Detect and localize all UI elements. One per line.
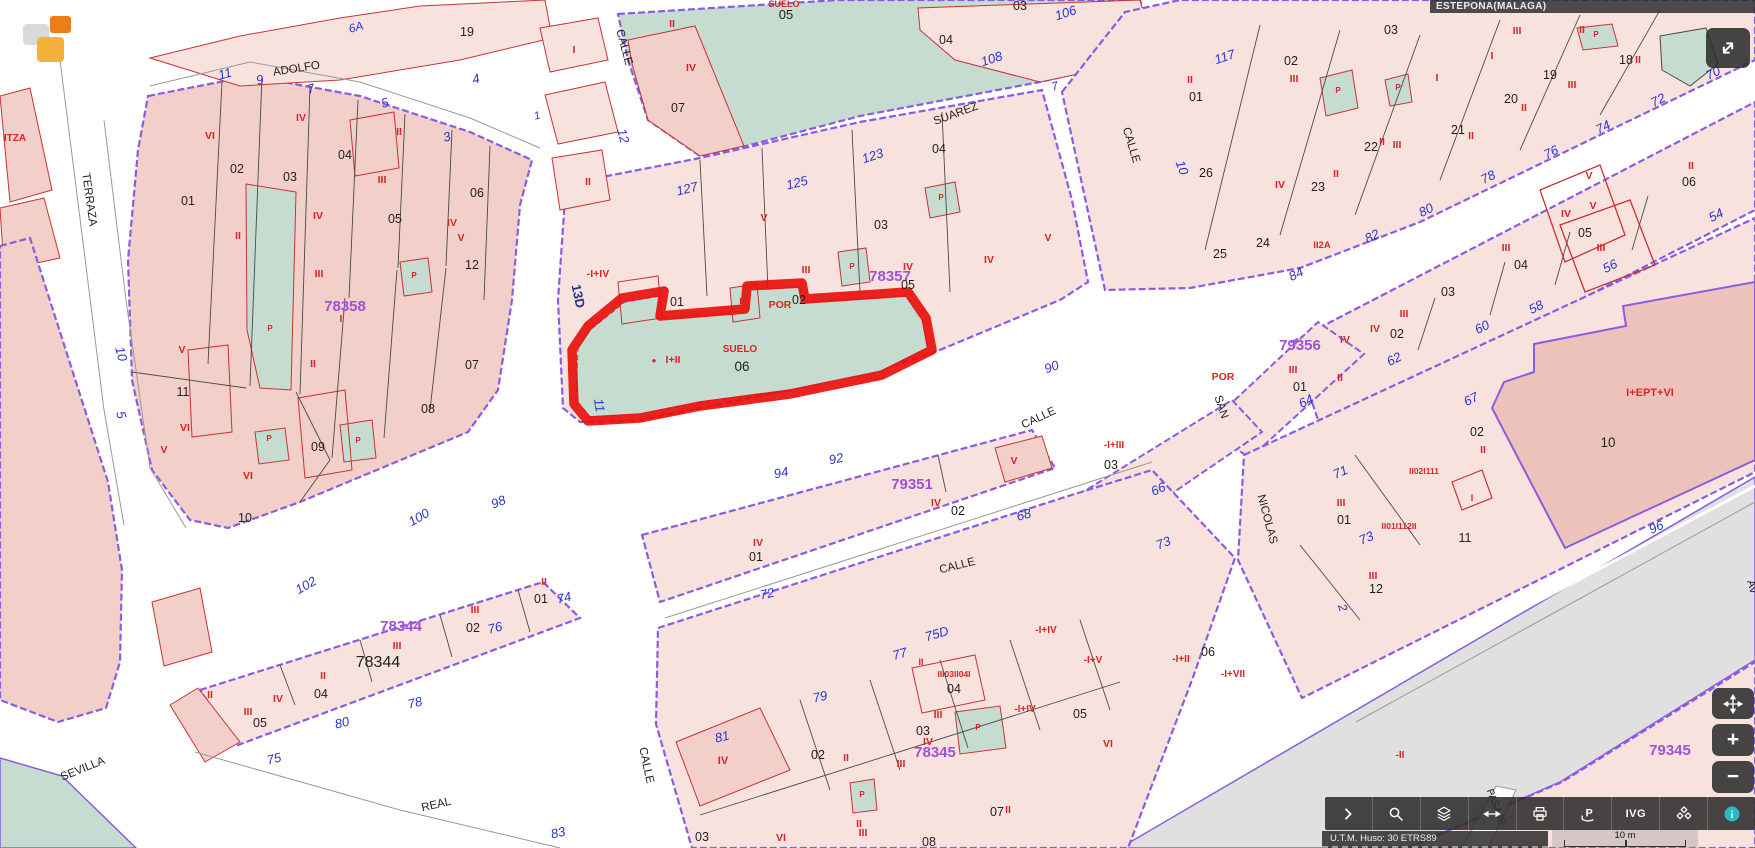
map-label: VI [776, 832, 786, 844]
map-label: 02 [466, 621, 480, 635]
map-label: 05 [901, 278, 915, 292]
map-label: II [396, 126, 402, 138]
map-label: 06 [470, 186, 484, 200]
map-label: SUELO [768, 0, 799, 9]
map-label: 11 [1459, 531, 1472, 545]
map-label: V [1585, 170, 1592, 182]
map-label: REAL [420, 796, 453, 815]
map-label: 01 [1189, 90, 1203, 104]
map-label: II [310, 358, 316, 370]
map-label: V [1010, 455, 1017, 467]
map-label: III [1369, 570, 1378, 582]
map-label: 12 [465, 258, 479, 272]
map-label: III [1290, 73, 1299, 85]
map-viewport: ADOLFOTERRAZACALLESUAREZCALLECALLECALLEC… [0, 0, 1755, 848]
chevron-right-icon [1340, 806, 1356, 822]
parcel-divider-line [195, 752, 560, 848]
map-label: 7 [1049, 78, 1061, 94]
map-label: 01 [670, 295, 684, 309]
map-label: P [1335, 86, 1341, 95]
map-label: 02 [811, 748, 825, 762]
map-label: II [1521, 102, 1527, 114]
map-label: 78344 [356, 654, 401, 671]
measure-button[interactable] [1468, 797, 1516, 830]
map-label: 26 [1199, 166, 1213, 180]
map-label: 03 [1104, 458, 1118, 472]
map-label: III [471, 604, 480, 616]
search-icon [1387, 805, 1405, 823]
map-label: III [1502, 242, 1511, 254]
map-label: 04 [1514, 258, 1528, 272]
map-label: 03 [695, 830, 709, 844]
map-label: 79351 [891, 476, 933, 493]
map-label: 12 [1369, 582, 1383, 596]
map-label: III [1393, 139, 1402, 151]
map-label: SEVILLA [59, 755, 107, 784]
zoom-out-button[interactable]: − [1712, 761, 1754, 793]
map-label: 02 [1284, 54, 1298, 68]
map-label: POR [769, 299, 792, 311]
map-label: II [669, 18, 675, 30]
map-label: 04 [314, 687, 328, 701]
map-label: II [320, 670, 326, 682]
calle-west-parcel-c[interactable] [552, 150, 610, 210]
map-label: -I+IV [1035, 625, 1057, 636]
map-label: 83 [549, 824, 567, 842]
map-label: V [178, 344, 185, 356]
map-label: 03 [283, 170, 297, 184]
left-right-arrow-icon [1483, 805, 1501, 823]
map-label: ● [652, 356, 657, 365]
green-parcel-78358-b[interactable] [255, 428, 289, 464]
cadastral-map[interactable]: ADOLFOTERRAZACALLESUAREZCALLECALLECALLEC… [0, 0, 1755, 848]
map-label: IV [1275, 179, 1285, 191]
map-label: II02I111 [1409, 466, 1439, 476]
map-label: 04 [338, 148, 352, 162]
map-label: III [1597, 242, 1606, 254]
p-pin-icon: P [1578, 804, 1598, 824]
move-arrows-icon [1723, 694, 1743, 714]
map-label: II [235, 230, 241, 242]
map-label: I [1491, 50, 1494, 62]
sevilla-corner-block[interactable] [0, 238, 122, 722]
map-label: IV [903, 261, 913, 273]
point-info-button[interactable]: P [1563, 797, 1611, 830]
layers-button[interactable] [1420, 797, 1468, 830]
map-label: 07 [671, 101, 685, 115]
map-label: 10 [1600, 435, 1615, 450]
map-label: 08 [421, 402, 435, 416]
map-label: VI [205, 130, 215, 142]
map-label: II [1187, 74, 1193, 86]
scale-bracket [1564, 840, 1686, 847]
map-label: 03 [874, 218, 888, 232]
map-label: II [207, 689, 213, 701]
map-label: 100 [406, 505, 433, 529]
map-label: I [573, 44, 576, 56]
bottom-toolbar: P IVG i [1325, 797, 1755, 830]
map-label: -I+VII [1221, 669, 1245, 680]
map-label: 18 [1619, 53, 1633, 67]
map-label: IV [296, 112, 306, 124]
map-label: 12 [614, 127, 632, 146]
map-label: II2A [1313, 240, 1331, 251]
map-label: IV [753, 537, 763, 549]
map-label: V [1044, 232, 1051, 244]
map-label: P [739, 297, 745, 306]
map-label: 25 [1213, 247, 1227, 261]
map-label: II [541, 576, 547, 588]
map-label: TERRAZA [79, 172, 98, 227]
map-label: V [1589, 200, 1596, 212]
map-label: IV [273, 693, 283, 705]
map-label: II [1468, 130, 1474, 142]
map-label: 19 [1543, 68, 1557, 82]
svg-text:P: P [1585, 807, 1592, 819]
map-label: III [897, 758, 906, 770]
map-label: III [1289, 364, 1298, 376]
utm-label: U.T.M. Huso: 30 ETRS89 [1322, 831, 1548, 848]
map-label: SUELO [723, 344, 758, 355]
map-label: II [1379, 136, 1385, 148]
map-label: 06 [734, 359, 749, 374]
map-label: II [585, 176, 591, 188]
map-label: III [1568, 79, 1577, 91]
map-label: 78345 [914, 744, 956, 761]
map-label: III [1513, 25, 1522, 37]
map-label: 75 [265, 749, 283, 767]
map-label: III [934, 709, 943, 721]
map-label: 4 [470, 70, 481, 86]
map-label: 79356 [1279, 337, 1321, 354]
search-button[interactable] [1372, 797, 1420, 830]
expand-toolbar-button[interactable] [1325, 797, 1372, 830]
map-label: V [160, 444, 167, 456]
map-label: I+EPT+VI [1626, 387, 1674, 399]
map-label: 1 [533, 110, 542, 123]
map-label: 05 [253, 716, 267, 730]
3d-cubes-button[interactable] [1659, 797, 1707, 830]
map-label: -I+II [1172, 654, 1190, 665]
map-label: V [760, 212, 767, 224]
map-label: -I+V [1084, 655, 1103, 666]
map-label: 02 [230, 162, 244, 176]
map-label: III [802, 264, 811, 276]
map-label: 05 [1578, 226, 1592, 240]
map-label: 02 [792, 293, 806, 307]
map-label: 90 [1042, 357, 1061, 376]
map-label: 04 [939, 33, 953, 47]
map-label: VI [1103, 738, 1113, 750]
map-label: II [856, 818, 862, 830]
map-label: 05 [1073, 707, 1087, 721]
map-label: -I+IV [1014, 704, 1036, 715]
map-label: IV [1340, 334, 1350, 346]
ivg-label: IVG [1626, 808, 1646, 820]
map-label: 05 [388, 212, 402, 226]
map-label: IV [718, 755, 729, 767]
map-label: 78358 [324, 298, 366, 315]
info-icon: i [1722, 804, 1742, 824]
map-label: -II [1396, 750, 1405, 761]
map-label: 01 [749, 550, 763, 564]
map-label: IV [1370, 323, 1380, 335]
printer-icon [1531, 805, 1549, 823]
zoom-in-button[interactable]: + [1712, 724, 1754, 756]
map-label: 24 [1256, 236, 1270, 250]
map-label: 20 [1504, 92, 1518, 106]
top-strip-block[interactable] [150, 0, 552, 86]
map-label: 03 [1013, 0, 1027, 13]
layers-icon [1435, 805, 1453, 823]
map-label: 92 [827, 450, 845, 468]
map-label: 01 [181, 194, 195, 208]
info-button[interactable]: i [1707, 797, 1755, 830]
map-label: 04 [947, 682, 961, 696]
map-label: 22 [1364, 140, 1378, 154]
map-label: 01 [534, 592, 548, 606]
map-label: P [849, 262, 855, 271]
scale-bar: 10 m [1552, 830, 1698, 848]
map-label: 10 [238, 511, 252, 525]
map-label: I+II [666, 354, 681, 366]
map-label: IV [1561, 208, 1571, 220]
map-label: II [1333, 168, 1339, 180]
map-label: 09 [311, 440, 325, 454]
map-label: ITZA [4, 133, 26, 144]
map-label: 02 [1390, 327, 1404, 341]
fullscreen-button[interactable] [1706, 28, 1750, 68]
map-label: 01 [1337, 513, 1351, 527]
map-label: 03 [1384, 23, 1398, 37]
map-label: P [267, 324, 273, 333]
print-button[interactable] [1516, 797, 1564, 830]
cubes-icon [1674, 804, 1694, 824]
map-label: 79345 [1649, 742, 1691, 759]
loading-tile-orange [50, 16, 71, 33]
map-label: 10 [112, 345, 130, 364]
map-label: II [1635, 54, 1641, 66]
map-label: II [1579, 24, 1585, 36]
map-label: 06 [1201, 645, 1215, 659]
map-label: III [244, 706, 253, 718]
map-label: II01I112II [1382, 521, 1417, 531]
map-label: IV [686, 62, 696, 74]
map-label: CALLE [1020, 405, 1058, 431]
map-label: 102 [293, 573, 320, 597]
map-label: II [1005, 804, 1011, 816]
map-label: P [859, 790, 865, 799]
map-label: 01 [1293, 380, 1307, 394]
map-label: 78344 [380, 618, 422, 635]
map-label: II [843, 752, 849, 764]
map-label: I [1436, 72, 1439, 84]
pan-button[interactable] [1712, 688, 1754, 719]
map-label: IV [447, 217, 457, 229]
west-small-parcel[interactable] [152, 588, 212, 666]
map-label: 11 [591, 397, 608, 413]
map-label: 23 [1311, 180, 1325, 194]
map-label: P [355, 436, 361, 445]
map-label: 80 [333, 713, 351, 731]
map-label: III [378, 174, 387, 186]
loading-tile-amber [37, 37, 64, 62]
map-label: VI [243, 470, 253, 482]
map-label: III [1337, 497, 1346, 509]
map-label: III [393, 640, 402, 652]
map-label: 21 [1451, 123, 1465, 137]
map-label: II [918, 657, 923, 667]
municipality-bar: ESTEPONA(MALAGA) [1430, 0, 1755, 13]
map-label: P [975, 723, 981, 732]
map-label: 03 [1441, 285, 1455, 299]
map-label: I [1471, 493, 1474, 503]
map-label: 5 [113, 409, 130, 421]
map-label: III03II04I [937, 669, 970, 679]
map-label: -I+IV [587, 268, 609, 280]
map-label: 98 [489, 492, 509, 512]
map-label: 05 [779, 7, 793, 22]
map-label: IV [923, 736, 933, 748]
west-sliver-1[interactable] [0, 88, 52, 202]
map-label: P [1593, 30, 1599, 39]
map-label: VI [180, 422, 190, 434]
map-label: III [1400, 308, 1409, 320]
map-label: 07 [465, 358, 479, 372]
map-label: III [315, 268, 324, 280]
map-label: II [1480, 444, 1486, 456]
map-label: 74 [555, 589, 573, 607]
map-label: 06 [1682, 175, 1696, 189]
svg-text:i: i [1730, 809, 1733, 820]
map-label: 72 [758, 585, 776, 603]
map-label: P [938, 193, 944, 202]
calle-west-parcel-b[interactable] [545, 82, 618, 144]
map-label: I [340, 313, 343, 325]
map-label: 02 [1470, 425, 1484, 439]
map-label: II [1688, 160, 1694, 172]
map-label: 02 [951, 504, 965, 518]
municipality-label: ESTEPONA(MALAGA) [1436, 1, 1546, 12]
map-label: 07 [990, 805, 1004, 819]
map-label: P [266, 434, 272, 443]
map-label: V [457, 232, 464, 244]
map-label: 94 [772, 464, 789, 482]
map-label: 19 [460, 25, 474, 39]
ivg-button[interactable]: IVG [1611, 797, 1659, 830]
map-label: IV [931, 497, 941, 509]
map-label: IV [984, 254, 994, 266]
map-label: 08 [922, 835, 936, 848]
map-label: II [1337, 372, 1343, 384]
map-label: 11 [177, 385, 190, 399]
map-label: 78 [406, 693, 424, 711]
map-label: IV [313, 210, 323, 222]
map-label: POR [1212, 371, 1235, 383]
map-label: CALLE [636, 746, 655, 784]
map-label: P [411, 271, 417, 280]
map-label: 04 [932, 142, 946, 156]
expand-diagonal-icon [1717, 37, 1739, 59]
map-label: P [1395, 83, 1401, 92]
map-label: -I+III [1104, 440, 1125, 451]
